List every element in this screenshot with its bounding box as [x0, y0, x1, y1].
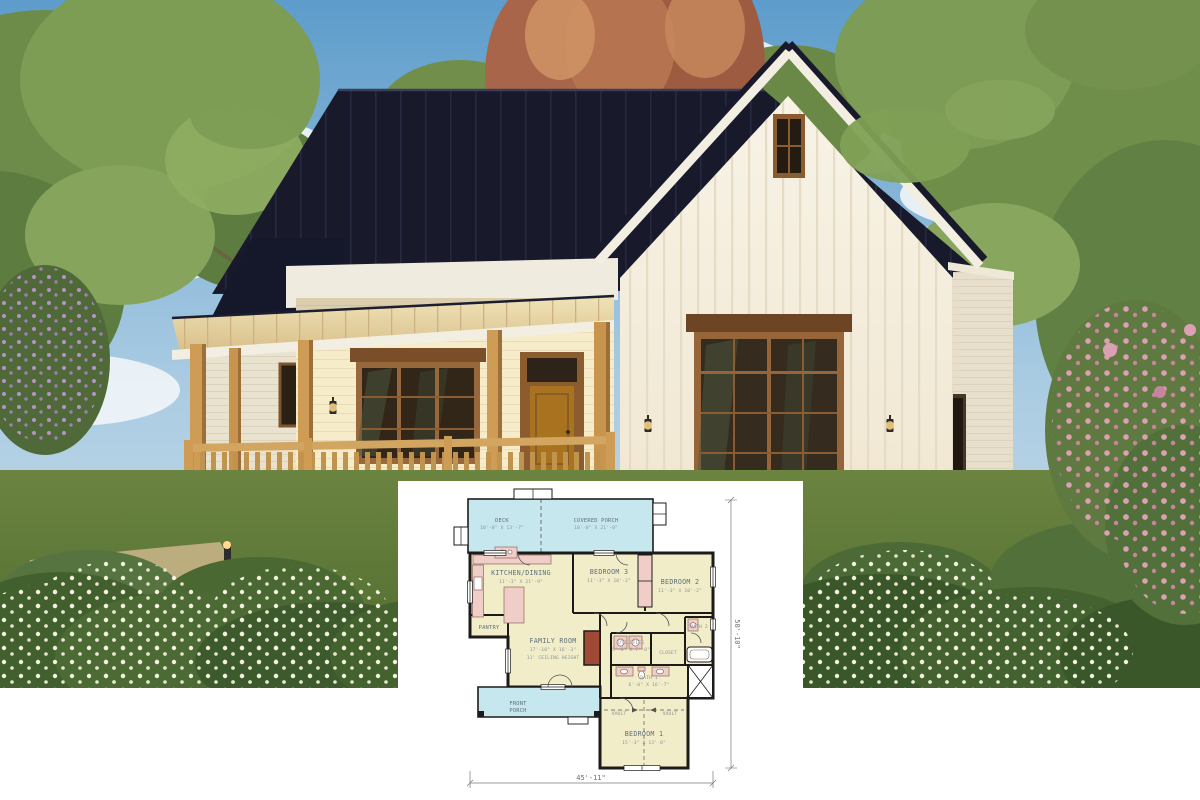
- covered-porch-dims: 10'-0" X 21'-0": [574, 525, 618, 531]
- utilities-dims: 5'-8" X 7'-0": [612, 647, 650, 653]
- deck-dims: 10'-0" X 13'-7": [480, 525, 524, 531]
- house-plan-listing-image: DECK 10'-0" X 13'-7" COVERED PORCH 10'-0…: [0, 0, 1200, 800]
- overall-width-dim: 45'-11": [576, 774, 606, 782]
- kitchen-dining-label: KITCHEN/DINING: [491, 569, 551, 577]
- room-front-porch: FRONT PORCH: [478, 687, 600, 724]
- deck-label: DECK: [495, 518, 509, 524]
- utilities-label: UTILITIES: [618, 640, 644, 646]
- bath1-label: BATH 1: [640, 675, 658, 681]
- bedroom1-label: BEDROOM 1: [625, 730, 663, 738]
- fireplace: [584, 631, 600, 665]
- front-porch-line1: FRONT: [509, 701, 527, 707]
- covered-porch-label: COVERED PORCH: [574, 518, 619, 524]
- vault-left-label: VAULT: [612, 711, 627, 717]
- bedroom2-label: BEDROOM 2: [661, 578, 699, 586]
- bedroom3-label: BEDROOM 3: [590, 568, 628, 576]
- bedroom2-dims: 11'-3" X 10'-2": [658, 588, 702, 594]
- closet-label: CLOSET: [659, 650, 677, 656]
- bedroom1-dims: 15'-3" X 13'-0": [622, 740, 666, 746]
- vault-right-label: VAULT: [663, 711, 678, 717]
- bedroom3-dims: 11'-3" X 10'-2": [587, 578, 631, 584]
- family-room-dims: 17'-10" X 16'-3": [530, 647, 577, 653]
- shower: [688, 665, 713, 698]
- room-deck-porch: DECK 10'-0" X 13'-7" COVERED PORCH 10'-0…: [454, 489, 666, 553]
- floor-plan-panel: DECK 10'-0" X 13'-7" COVERED PORCH 10'-0…: [398, 481, 803, 800]
- family-room-label: FAMILY ROOM: [530, 637, 577, 645]
- kitchen-dining-dims: 11'-3" X 21'-9": [499, 579, 543, 585]
- floor-plan: DECK 10'-0" X 13'-7" COVERED PORCH 10'-0…: [398, 481, 803, 800]
- front-porch-line2: PORCH: [509, 708, 526, 714]
- bath2-label: BATH 2: [690, 624, 708, 630]
- bath1-dims: 6'-0" X 16'-7": [629, 682, 670, 688]
- overall-depth-dim: 50'-10": [733, 619, 741, 649]
- family-room-note: 11' CEILING HEIGHT: [527, 655, 580, 661]
- pantry-label: PANTRY: [479, 625, 500, 631]
- attic-window: [773, 114, 805, 178]
